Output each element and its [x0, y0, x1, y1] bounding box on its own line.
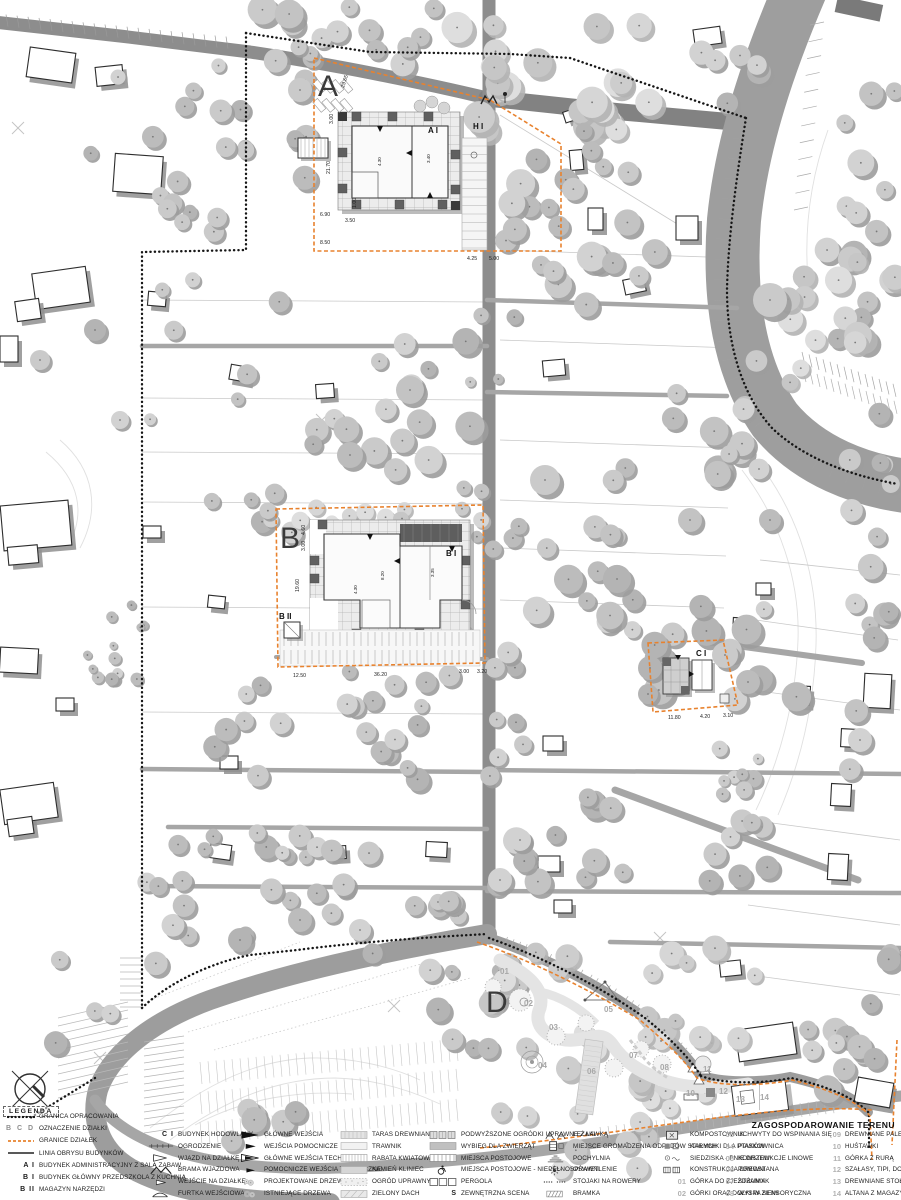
compass-rose [12, 1071, 48, 1107]
playground-number: 06 [587, 1067, 596, 1076]
site-plan: ABDA IB IB IIC IH I29.653.0021.701.006.9… [0, 0, 901, 1200]
dimension-label: 19.60 [295, 579, 301, 592]
dimension-label: 3.00 [301, 541, 307, 551]
building-label: A I [428, 126, 438, 135]
dimension-label: 4.60 [301, 525, 307, 535]
playground-number: 01 [500, 967, 509, 976]
dimension-label: 3.10 [723, 713, 733, 719]
dimension-label: 12.50 [293, 673, 306, 679]
playground-number: 04 [538, 1061, 547, 1070]
plot-letter-D: D [486, 986, 508, 1019]
playground-number: 07 [629, 1051, 638, 1060]
dimension-label: 11.80 [668, 715, 681, 721]
dimension-label: 4.30 [377, 157, 382, 166]
playground-number: 05 [604, 1005, 613, 1014]
playground-number: 14 [760, 1093, 769, 1102]
dimension-label: 21.70 [326, 161, 332, 174]
playground-number: 11 [703, 1065, 712, 1074]
dimension-label: 36.20 [374, 672, 387, 678]
playground-number: 03 [549, 1023, 558, 1032]
dimension-label: 1.00 [352, 198, 358, 208]
playground-number: 13 [736, 1095, 745, 1104]
dimension-label: 3.20 [477, 669, 487, 675]
playground-number: 10 [686, 1089, 695, 1098]
dimension-label: 3.35 [430, 568, 435, 577]
dimension-label: 3.40 [426, 154, 431, 163]
building-label: B II [279, 612, 291, 621]
building-label: C I [696, 649, 706, 658]
dimension-label: 3.50 [345, 218, 355, 224]
dimension-label: 8.20 [380, 571, 385, 580]
plot-letter-B: B [280, 522, 300, 555]
dimension-label: 4.20 [700, 714, 710, 720]
dimension-label: 4.30 [353, 585, 358, 594]
site-plan-map: ABDA IB IB IIC IH I29.653.0021.701.006.9… [0, 0, 901, 1200]
dimension-label: 8.50 [320, 240, 330, 246]
playground-number: 12 [719, 1087, 728, 1096]
building-label: B I [446, 549, 456, 558]
building-b [280, 520, 480, 666]
dimension-label: 3.00 [459, 669, 469, 675]
building-label: H I [473, 122, 483, 131]
dimension-label: 4.25 [467, 256, 477, 262]
plot-letter-A: A [318, 70, 338, 103]
dimension-label: 5.00 [489, 256, 499, 262]
playground-number: 02 [524, 999, 533, 1008]
dimension-label: 3.00 [329, 114, 335, 124]
playground-number: 08 [660, 1063, 669, 1072]
dimension-label: 6.90 [320, 212, 330, 218]
